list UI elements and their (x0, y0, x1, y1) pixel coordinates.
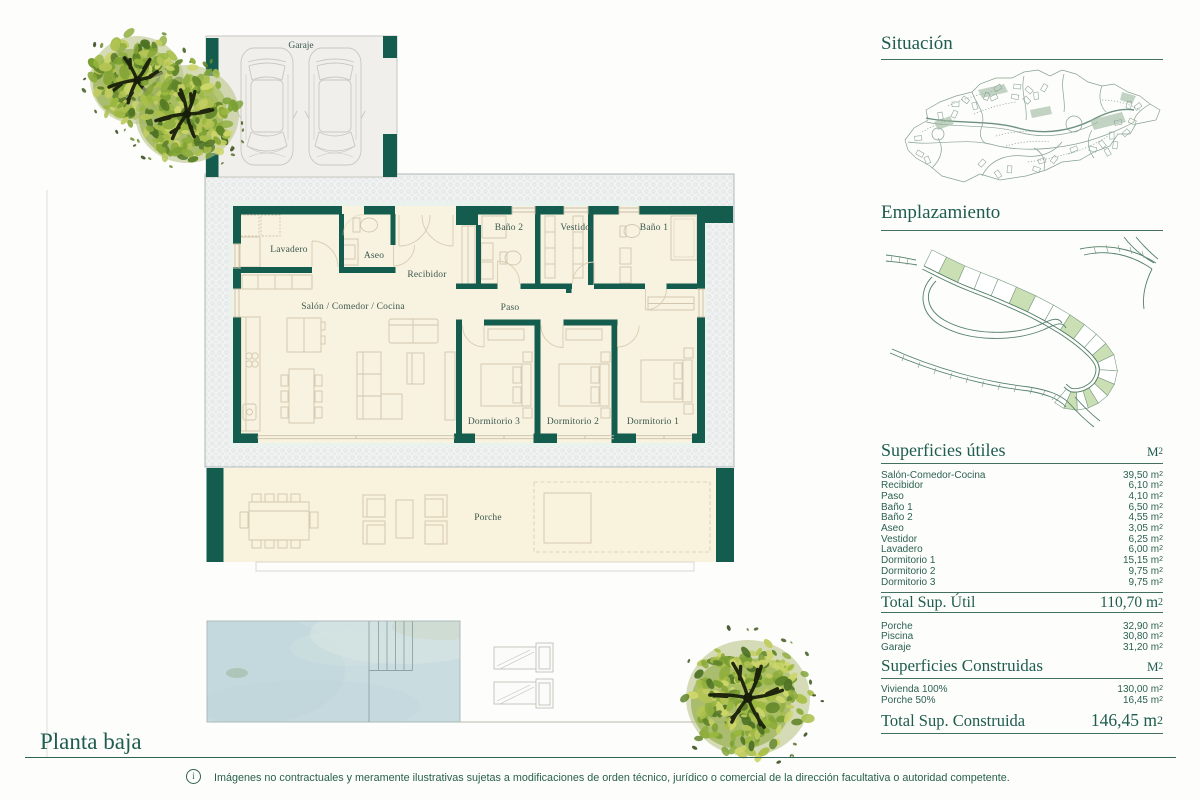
svg-text:Porche: Porche (474, 513, 502, 523)
svg-text:Dormitorio 1: Dormitorio 1 (627, 417, 679, 427)
svg-text:Recibidor: Recibidor (407, 270, 447, 280)
svg-text:Aseo: Aseo (364, 251, 384, 261)
svg-text:Baño 2: Baño 2 (495, 223, 523, 233)
svg-text:Dormitorio 3: Dormitorio 3 (468, 417, 520, 427)
svg-text:Lavadero: Lavadero (270, 245, 308, 255)
svg-text:Vestidor: Vestidor (560, 223, 594, 233)
svg-text:Dormitorio 2: Dormitorio 2 (547, 417, 599, 427)
svg-text:Paso: Paso (501, 303, 520, 313)
svg-text:Salón / Comedor / Cocina: Salón / Comedor / Cocina (301, 302, 405, 312)
svg-text:Garaje: Garaje (288, 41, 313, 51)
svg-text:Baño 1: Baño 1 (640, 223, 668, 233)
